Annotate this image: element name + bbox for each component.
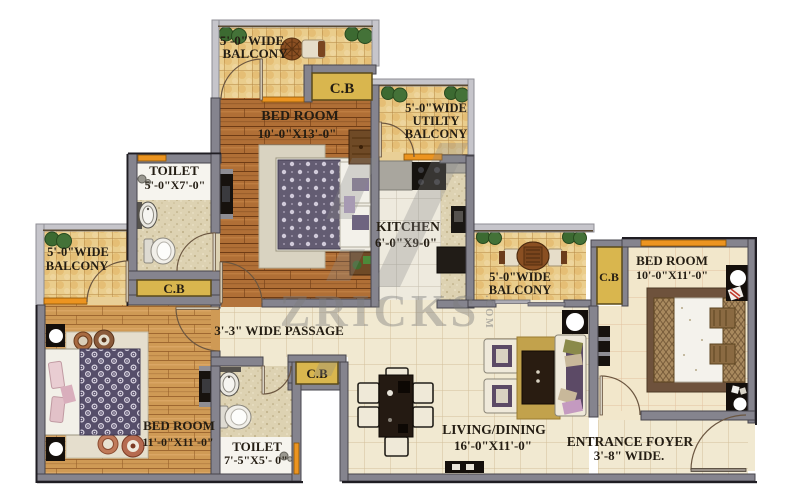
svg-text:C.B: C.B bbox=[330, 81, 355, 97]
svg-text:ENTRANCE FOYER: ENTRANCE FOYER bbox=[567, 434, 694, 449]
svg-text:3'-8" WIDE.: 3'-8" WIDE. bbox=[594, 448, 665, 463]
svg-text:TOILET: TOILET bbox=[149, 163, 199, 178]
svg-text:5'-0"X7'-0": 5'-0"X7'-0" bbox=[145, 178, 206, 192]
svg-text:5'-0"WIDE: 5'-0"WIDE bbox=[47, 245, 109, 259]
svg-text:UTILTY: UTILTY bbox=[413, 114, 460, 128]
svg-text:LIVING/DINING: LIVING/DINING bbox=[442, 422, 546, 437]
svg-text:TOILET: TOILET bbox=[232, 439, 282, 454]
svg-text:BALCONY: BALCONY bbox=[46, 259, 109, 273]
svg-text:BED ROOM: BED ROOM bbox=[261, 109, 338, 124]
svg-text:11'-0"X11'-0": 11'-0"X11'-0" bbox=[142, 435, 213, 449]
svg-text:7'-5"X5'- 0": 7'-5"X5'- 0" bbox=[224, 453, 288, 467]
svg-text:C.B: C.B bbox=[599, 270, 619, 284]
svg-text:10'-0"X13'-0": 10'-0"X13'-0" bbox=[258, 126, 337, 141]
svg-text:.COM: .COM bbox=[483, 295, 494, 329]
svg-text:BED ROOM: BED ROOM bbox=[143, 418, 215, 433]
svg-text:ZRICKS: ZRICKS bbox=[280, 285, 480, 336]
svg-text:10'-0"X11'-0": 10'-0"X11'-0" bbox=[636, 268, 708, 282]
svg-text:16'-0"X11'-0": 16'-0"X11'-0" bbox=[454, 438, 532, 453]
svg-text:BED ROOM: BED ROOM bbox=[636, 253, 708, 268]
svg-text:5'-0"WIDE: 5'-0"WIDE bbox=[489, 270, 551, 284]
svg-text:C.B: C.B bbox=[163, 281, 185, 296]
svg-text:BALCONY: BALCONY bbox=[489, 283, 552, 297]
svg-text:BALCONY: BALCONY bbox=[222, 46, 288, 61]
svg-text:BALCONY: BALCONY bbox=[405, 127, 468, 141]
svg-text:5'-0"WIDE: 5'-0"WIDE bbox=[405, 101, 467, 115]
